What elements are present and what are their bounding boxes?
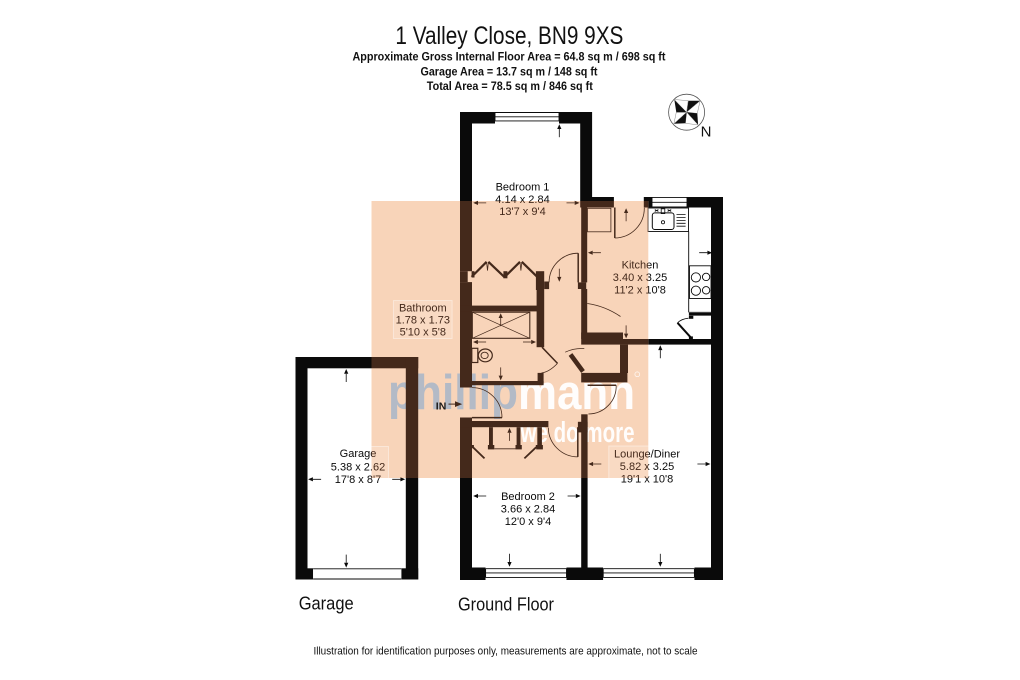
svg-text:IN: IN (436, 401, 447, 413)
svg-text:Illustration for identificatio: Illustration for identification purposes… (314, 646, 698, 658)
svg-text:Total Area = 78.5 sq m / 846 s: Total Area = 78.5 sq m / 846 sq ft (427, 79, 593, 93)
svg-text:Ground Floor: Ground Floor (458, 595, 554, 615)
svg-text:Garage Area = 13.7 sq m / 148: Garage Area = 13.7 sq m / 148 sq ft (421, 64, 598, 78)
svg-text:Approximate Gross Internal Flo: Approximate Gross Internal Floor Area = … (353, 49, 666, 63)
svg-text:Garage: Garage (299, 593, 354, 613)
svg-text:N: N (701, 124, 712, 141)
svg-text:1 Valley Close, BN9 9XS: 1 Valley Close, BN9 9XS (395, 22, 623, 50)
